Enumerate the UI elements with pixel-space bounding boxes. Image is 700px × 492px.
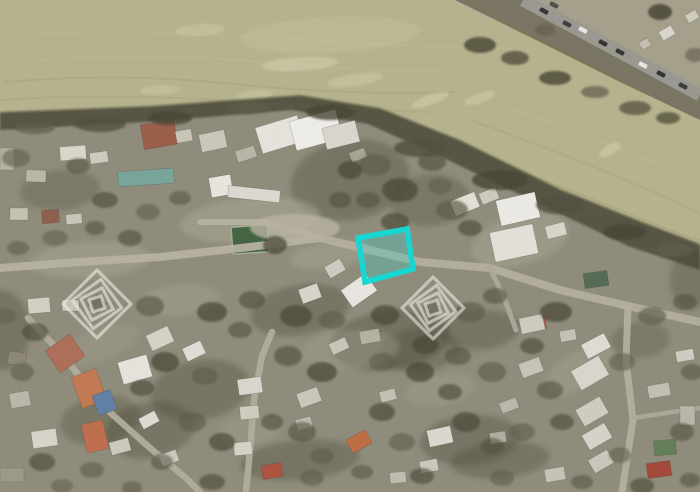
building-roof [583,270,609,288]
tree-canopy [192,367,218,385]
tree-canopy [359,154,391,176]
tree-canopy [338,161,362,179]
building-roof [680,406,695,425]
building-roof [31,428,58,448]
tree-canopy [673,294,697,310]
tree-canopy [609,447,631,463]
tree-canopy [29,453,55,471]
tree-canopy [406,362,434,382]
tree-canopy [329,192,351,208]
tree-canopy [307,362,337,382]
building-roof [26,170,46,183]
tree-canopy [410,468,434,484]
tree-canopy [300,470,324,486]
building-roof [10,208,28,220]
tree-canopy [148,111,192,125]
tree-canopy [619,101,651,115]
tree-canopy [501,51,529,65]
building-roof [261,462,283,479]
tree-canopy [230,102,270,114]
tree-canopy [540,302,572,322]
tree-canopy [136,296,164,316]
tree-canopy [319,311,345,329]
tree-canopy [15,122,55,134]
aerial-map-svg [0,0,700,492]
layer-parcel [358,229,413,282]
tree-canopy [197,302,227,322]
tree-canopy [452,412,480,432]
tree-canopy [436,200,468,220]
tree-canopy [178,412,206,432]
tree-canopy [22,323,48,341]
building-roof [175,129,193,144]
tree-canopy [42,230,68,246]
tree-canopy [537,381,563,399]
tree-canopy [509,423,535,441]
tree-canopy [7,241,29,255]
tree-canopy [657,243,693,257]
tree-canopy [169,191,191,205]
tree-canopy [478,362,506,382]
building-roof [66,213,83,224]
tree-canopy [261,414,283,430]
tree-canopy [464,37,496,53]
tree-canopy [288,422,316,442]
tree-canopy [136,204,160,220]
map-viewport[interactable] [0,0,700,492]
tree-canopy [445,347,471,365]
tree-canopy [351,465,373,479]
tree-canopy [472,170,528,190]
building-roof [9,390,31,408]
tree-canopy [483,288,507,304]
tree-canopy [571,475,593,489]
tree-canopy [10,363,34,381]
tree-canopy [535,24,555,36]
tree-canopy [539,71,571,85]
tree-canopy [680,473,700,487]
tree-canopy [263,236,287,254]
tree-canopy [239,291,265,309]
tree-canopy [428,178,452,194]
building-roof [559,329,577,343]
tree-canopy [648,4,672,20]
tree-canopy [550,414,574,430]
building-roof [237,376,263,395]
tree-canopy [356,192,380,208]
tree-canopy [130,380,154,396]
building-roof [89,151,108,164]
tree-canopy [480,438,504,454]
tree-canopy [520,338,544,354]
tree-canopy [371,305,399,325]
tree-canopy [151,352,179,372]
building-roof [233,441,252,456]
tree-canopy [2,149,30,167]
tree-canopy [199,474,225,490]
tree-canopy [382,178,418,202]
tree-canopy [438,384,462,400]
tree-canopy [369,353,395,371]
tree-canopy [280,305,312,327]
building-roof [60,145,87,161]
tree-canopy [581,86,609,98]
tree-canopy [458,220,482,236]
tree-canopy [228,322,252,338]
tree-canopy [490,470,514,486]
building-roof [390,471,407,483]
tree-canopy [274,346,302,366]
tree-canopy [638,307,666,325]
building-roof [239,405,259,420]
tree-canopy [92,192,118,208]
building-roof [653,439,676,456]
tree-canopy [118,230,142,246]
tree-canopy [74,116,126,132]
tree-canopy [418,153,446,171]
selected-parcel-highlight[interactable] [358,229,413,282]
tree-canopy [151,454,173,470]
tree-canopy [536,196,584,214]
tree-canopy [609,353,635,371]
tree-canopy [310,448,334,464]
tree-canopy [209,433,235,451]
building-roof [27,297,50,314]
building-roof [0,468,24,482]
tree-canopy [656,112,680,124]
tree-canopy [80,462,104,478]
tree-canopy [66,158,90,174]
tree-canopy [85,221,105,235]
building-roof [646,460,672,478]
tree-canopy [603,224,647,240]
building-roof [41,209,59,223]
tree-canopy [389,433,415,451]
tree-canopy [670,423,694,441]
tree-canopy [306,104,354,120]
tree-canopy [369,403,395,421]
